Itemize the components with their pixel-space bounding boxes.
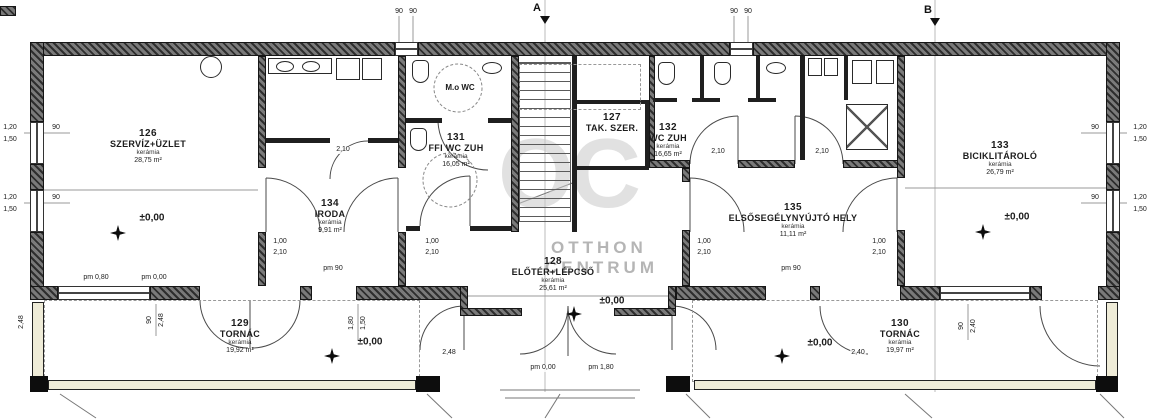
dimension-label: 1,00 xyxy=(424,238,440,246)
dimension-label: 2,10 xyxy=(871,249,887,257)
fixture xyxy=(852,60,872,84)
dimension-label: 90 xyxy=(51,124,61,132)
partition xyxy=(406,118,442,123)
fixture xyxy=(876,60,894,84)
wall xyxy=(1098,286,1120,300)
dimension-label: 90 xyxy=(146,315,154,325)
dimension-label: 90 xyxy=(394,8,404,16)
window xyxy=(395,42,418,56)
room-130-label: 130 TORNÁC kerámia 19,97 m² xyxy=(880,318,920,355)
corner-mark xyxy=(0,6,16,16)
wall xyxy=(614,308,676,316)
sink-icon xyxy=(276,61,294,72)
floor-plan: OC OTTHON CENTRUM xyxy=(0,0,1151,420)
wall xyxy=(1030,286,1042,300)
dimension-label: 90 xyxy=(1090,194,1100,202)
dimension-label: 90 xyxy=(743,8,753,16)
porch-parapet xyxy=(1106,302,1118,380)
window xyxy=(730,42,753,56)
dimension-label: 90 xyxy=(408,8,418,16)
wall xyxy=(810,286,820,300)
dimension-label: 2,40 xyxy=(970,318,978,334)
partition xyxy=(368,138,398,143)
room-area: 25,61 m² xyxy=(512,285,595,293)
room-127-label: 127 TAK. SZER. xyxy=(586,112,638,133)
wall xyxy=(398,232,406,286)
sink-icon xyxy=(482,62,502,74)
toilet-icon xyxy=(714,62,731,85)
room-name: BICIKLITÁROLÓ xyxy=(963,151,1037,161)
dimension-label: 90 xyxy=(729,8,739,16)
wall xyxy=(897,56,905,178)
room-material: kerámia xyxy=(429,153,484,161)
partition xyxy=(470,226,511,231)
level-marker: ±0,00 xyxy=(358,337,383,348)
wall xyxy=(900,286,940,300)
dimension-label: 1,20 xyxy=(1132,124,1148,132)
room-134-label: 134 IRODA kerámia 9,91 m² xyxy=(315,198,346,235)
dimension-label: 1,50 xyxy=(1132,136,1148,144)
dimension-label: 1,20 xyxy=(1132,194,1148,202)
dimension-label: pm 0,00 xyxy=(140,274,167,282)
dimension-label: pm 0,80 xyxy=(82,274,109,282)
partition xyxy=(488,118,511,123)
dimension-label: 1,80 xyxy=(348,315,356,331)
urinal-icon xyxy=(824,58,838,76)
room-name: TORNÁC xyxy=(880,329,920,339)
dimension-label: 1,00 xyxy=(272,238,288,246)
partition xyxy=(800,56,805,160)
room-133-label: 133 BICIKLITÁROLÓ kerámia 26,79 m² xyxy=(963,140,1037,177)
room-material: kerámia xyxy=(880,339,920,347)
toilet-icon xyxy=(410,128,427,151)
wall xyxy=(30,42,44,122)
section-arrow-icon xyxy=(540,16,550,24)
dimension-label: pm 90 xyxy=(322,265,343,273)
level-marker: ±0,00 xyxy=(1005,212,1030,223)
wall xyxy=(682,168,690,182)
sink-icon xyxy=(200,56,222,78)
room-name: TORNÁC xyxy=(220,329,260,339)
dimension-label: 1,50 xyxy=(2,136,18,144)
partition xyxy=(653,98,677,102)
level-marker: ±0,00 xyxy=(140,213,165,224)
room-number: 127 xyxy=(586,112,638,123)
dimension-label: 2,10 xyxy=(710,148,726,156)
room-material: kerámia xyxy=(729,223,858,231)
dimension-label: 2,10 xyxy=(696,249,712,257)
watermark-line1: OTTHON xyxy=(551,238,647,258)
room-number: 130 xyxy=(880,318,920,329)
dimension-label: 1,20 xyxy=(2,124,18,132)
dimension-label: 1,00 xyxy=(871,238,887,246)
wall xyxy=(682,230,690,286)
dimension-label: 1,50 xyxy=(1132,206,1148,214)
dimension-label: 2,48 xyxy=(158,312,166,328)
room-number: 126 xyxy=(110,128,186,139)
room-129-label: 129 TORNÁC kerámia 19,92 m² xyxy=(220,318,260,355)
partition xyxy=(700,56,704,98)
cabinet-icon xyxy=(336,58,360,80)
section-marker-a: A xyxy=(533,2,541,14)
wall xyxy=(418,42,730,56)
room-material: kerámia xyxy=(110,149,186,157)
room-number: 132 xyxy=(649,122,687,133)
room-name: IRODA xyxy=(315,209,346,219)
room-name: ELSŐSEGÉLYNYÚJTÓ HELY xyxy=(729,213,858,223)
wall xyxy=(398,56,406,168)
level-marker: ±0,00 xyxy=(808,338,833,349)
partition xyxy=(756,56,760,98)
window xyxy=(58,286,150,300)
wall xyxy=(738,160,795,168)
dimension-label: 1,20 xyxy=(2,194,18,202)
room-material: kerámia xyxy=(649,143,687,151)
window xyxy=(1106,190,1120,232)
dimension-label: pm 90 xyxy=(780,265,801,273)
shower-icon xyxy=(846,104,888,150)
room-name: SZERVÍZ+ÜZLET xyxy=(110,139,186,149)
room-name: ELŐTÉR+LÉPCSŐ xyxy=(512,267,595,277)
dimension-label: 2,10 xyxy=(814,148,830,156)
wall xyxy=(753,42,1120,56)
wall xyxy=(150,286,200,300)
dimension-label: 90 xyxy=(1090,124,1100,132)
section-marker-b: B xyxy=(924,4,932,16)
room-number: 134 xyxy=(315,198,346,209)
porch-parapet xyxy=(694,380,1096,390)
room-number: 135 xyxy=(729,202,858,213)
partition xyxy=(266,138,330,143)
room-135-label: 135 ELSŐSEGÉLYNYÚJTÓ HELY kerámia 11,11 … xyxy=(729,202,858,239)
room-name: WC ZUH xyxy=(649,133,687,143)
room-material: kerámia xyxy=(220,339,260,347)
room-area: 16,05 m² xyxy=(429,161,484,169)
level-marker: ±0,00 xyxy=(600,296,625,307)
window xyxy=(30,190,44,232)
partition xyxy=(844,56,848,100)
dimension-label: 1,50 xyxy=(360,315,368,331)
toilet-icon xyxy=(412,60,429,83)
dimension-label: 2,40 xyxy=(850,349,866,357)
porch-column xyxy=(1096,376,1118,392)
toilet-icon xyxy=(658,62,675,85)
wall xyxy=(649,160,690,168)
wall xyxy=(30,42,395,56)
partition xyxy=(692,98,720,102)
wall xyxy=(460,308,522,316)
room-number: 133 xyxy=(963,140,1037,151)
partition xyxy=(748,98,776,102)
sink-icon xyxy=(766,62,786,74)
room-number: 128 xyxy=(512,256,595,267)
wall xyxy=(1106,164,1120,190)
room-area: 19,97 m² xyxy=(880,347,920,355)
wall xyxy=(30,286,58,300)
room-name: FFI WC ZUH xyxy=(429,143,484,153)
wall xyxy=(258,56,266,168)
wall xyxy=(511,56,519,232)
dimension-label: 90 xyxy=(51,194,61,202)
room-area: 11,11 m² xyxy=(729,231,858,239)
window xyxy=(30,122,44,164)
partition xyxy=(577,166,649,170)
room-area: 26,79 m² xyxy=(963,169,1037,177)
dimension-label: 2,10 xyxy=(335,146,351,154)
room-area: 19,92 m² xyxy=(220,347,260,355)
porch-column xyxy=(666,376,690,392)
room-126-label: 126 SZERVÍZ+ÜZLET kerámia 28,75 m² xyxy=(110,128,186,165)
dimension-label: 2,10 xyxy=(424,249,440,257)
window xyxy=(940,286,1030,300)
dimension-label: 2,48 xyxy=(18,314,26,330)
room-number: 131 xyxy=(429,132,484,143)
stair-landing-outline xyxy=(519,64,641,110)
sink-icon xyxy=(302,61,320,72)
dimension-label: 1,50 xyxy=(2,206,18,214)
wall xyxy=(356,286,466,300)
room-material: kerámia xyxy=(512,277,595,285)
dimension-label: 90 xyxy=(958,321,966,331)
cabinet-icon xyxy=(362,58,382,80)
room-128-label: 128 ELŐTÉR+LÉPCSŐ kerámia 25,61 m² xyxy=(512,256,595,293)
wall xyxy=(843,160,905,168)
wall xyxy=(676,286,766,300)
room-mo-wc-label: M.o WC xyxy=(444,84,475,92)
wall xyxy=(300,286,312,300)
room-area: 28,75 m² xyxy=(110,157,186,165)
partition xyxy=(406,226,420,231)
wall xyxy=(30,164,44,190)
room-number: 129 xyxy=(220,318,260,329)
window xyxy=(1106,122,1120,164)
room-material: kerámia xyxy=(963,161,1037,169)
porch-parapet xyxy=(32,302,44,380)
wall xyxy=(897,230,905,286)
dimension-label: 2,48 xyxy=(441,349,457,357)
wall xyxy=(258,232,266,286)
porch-column xyxy=(416,376,440,392)
dimension-label: 2,10 xyxy=(272,249,288,257)
room-area: 9,91 m² xyxy=(315,227,346,235)
dimension-label: pm 1,80 xyxy=(587,364,614,372)
dimension-label: pm 0,00 xyxy=(529,364,556,372)
section-arrow-icon xyxy=(930,18,940,26)
room-132-label: 132 WC ZUH kerámia 16,65 m² xyxy=(649,122,687,159)
dimension-label: 1,00 xyxy=(696,238,712,246)
urinal-icon xyxy=(808,58,822,76)
wall xyxy=(1106,42,1120,122)
room-131-label: 131 FFI WC ZUH kerámia 16,05 m² xyxy=(429,132,484,169)
porch-parapet xyxy=(48,380,416,390)
porch-column xyxy=(30,376,48,392)
room-name: TAK. SZER. xyxy=(586,123,638,133)
room-material: kerámia xyxy=(315,219,346,227)
room-area: 16,65 m² xyxy=(649,151,687,159)
